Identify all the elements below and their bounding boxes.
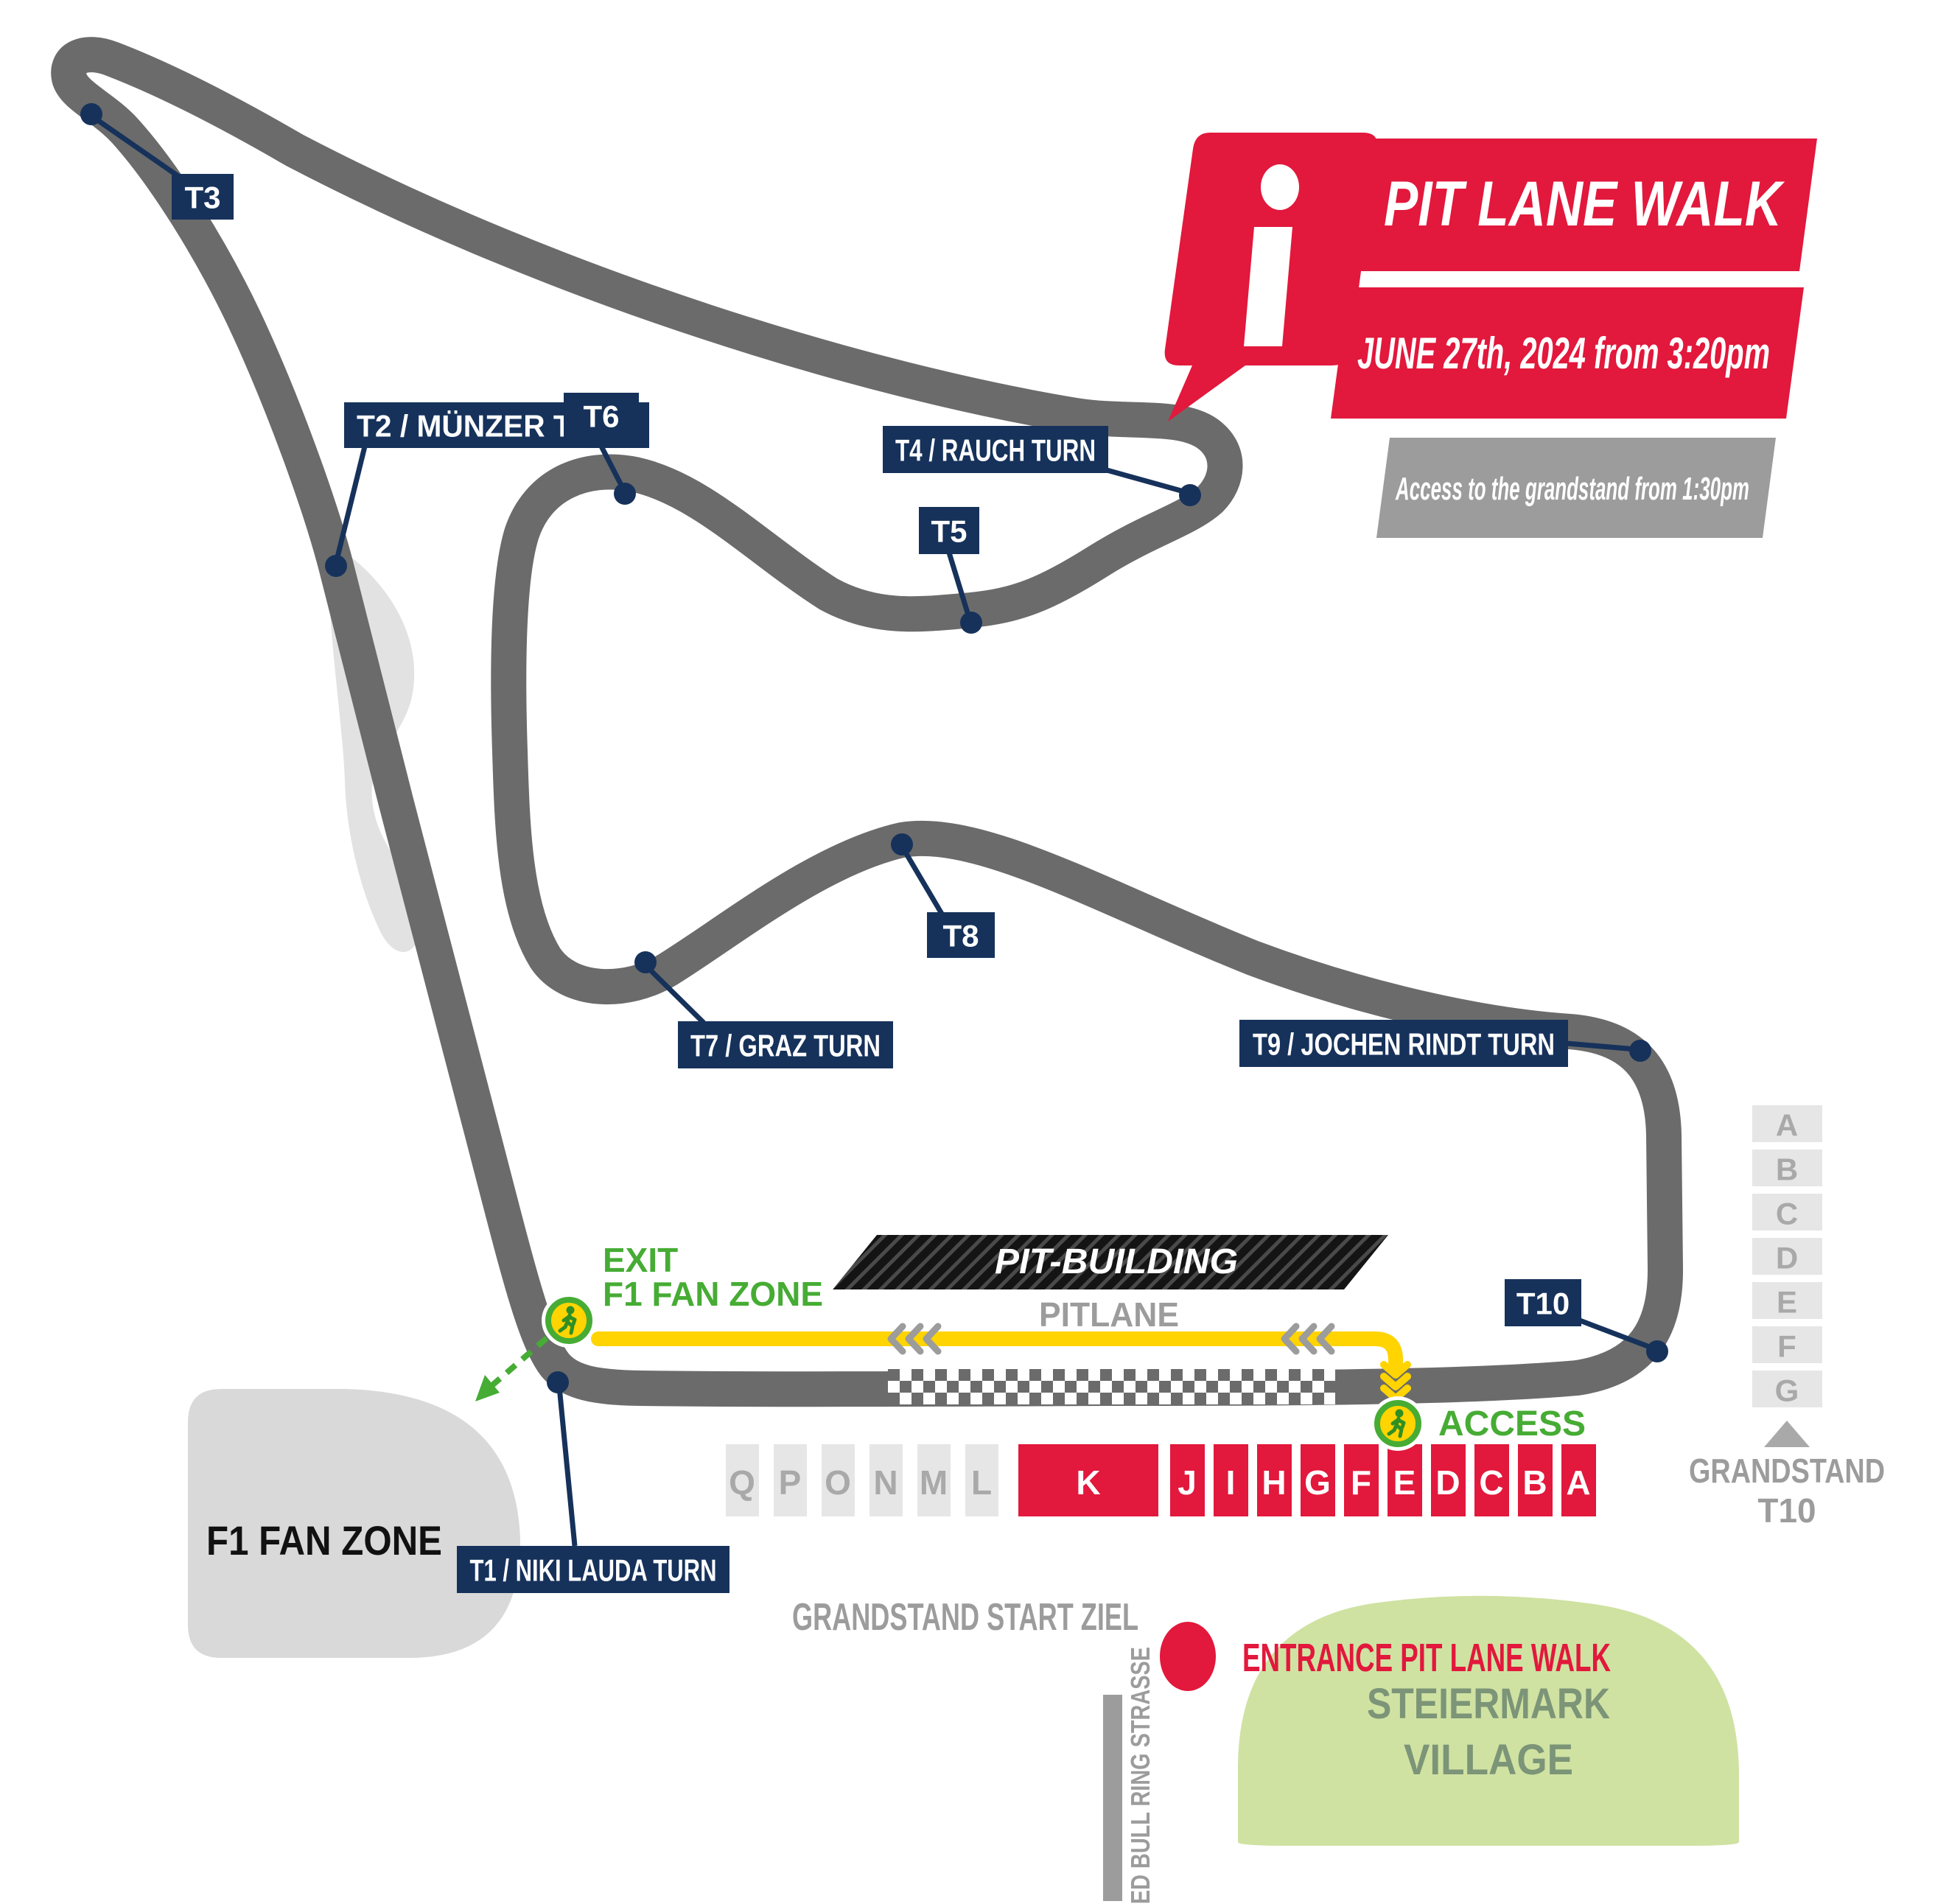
t10-section-letter: E bbox=[1777, 1285, 1797, 1320]
section-letter: M bbox=[920, 1463, 948, 1502]
pit-lane-walk-path bbox=[598, 1339, 1396, 1363]
pitlane-label: PITLANE bbox=[1039, 1295, 1179, 1334]
turn-label-t5: T5 bbox=[931, 514, 967, 549]
exit-walk-icon bbox=[542, 1293, 596, 1348]
section-letter: H bbox=[1262, 1463, 1286, 1502]
turn-label-t3: T3 bbox=[184, 181, 220, 215]
steiermark-village-label-line1: STEIERMARK bbox=[1367, 1680, 1610, 1728]
turn-label-t7: T7 / GRAZ TURN bbox=[690, 1029, 881, 1063]
section-letter: O bbox=[825, 1463, 851, 1502]
f1-fan-zone-label: F1 FAN ZONE bbox=[206, 1517, 442, 1564]
event-info-banner: PIT LANE WALK JUNE 27th, 2024 from 3:20p… bbox=[1165, 133, 1817, 538]
t10-section-letter: B bbox=[1776, 1152, 1798, 1187]
access-walk-icon bbox=[1371, 1396, 1425, 1451]
t10-section-letter: G bbox=[1775, 1373, 1799, 1408]
turn-label-t6: T6 bbox=[583, 399, 619, 434]
entrance-label: ENTRANCE PIT LANE WALK bbox=[1242, 1636, 1611, 1680]
grandstand-start-ziel-label: GRANDSTAND START ZIEL bbox=[792, 1596, 1138, 1639]
steiermark-village-label-line2: VILLAGE bbox=[1404, 1736, 1573, 1784]
entrance-dot bbox=[1160, 1622, 1216, 1691]
turn-label-t9: T9 / JOCHEN RINDT TURN bbox=[1253, 1027, 1555, 1062]
t10-section-letter: A bbox=[1776, 1108, 1798, 1143]
section-letter: J bbox=[1178, 1463, 1197, 1502]
section-letter: Q bbox=[729, 1463, 755, 1502]
start-finish-checker-strip bbox=[888, 1369, 1335, 1404]
section-letter: L bbox=[971, 1463, 992, 1502]
grandstand-t10-label-line2: T10 bbox=[1757, 1491, 1816, 1530]
section-letter-k: K bbox=[1076, 1463, 1100, 1502]
section-letter: C bbox=[1479, 1463, 1503, 1502]
section-letter: I bbox=[1226, 1463, 1236, 1502]
section-letter: D bbox=[1435, 1463, 1460, 1502]
section-letter: A bbox=[1566, 1463, 1590, 1502]
section-letter: F bbox=[1351, 1463, 1371, 1502]
banner-title: PIT LANE WALK bbox=[1384, 169, 1785, 239]
turn-label-t10: T10 bbox=[1516, 1287, 1570, 1321]
section-letter: G bbox=[1304, 1463, 1331, 1502]
access-label: ACCESS bbox=[1438, 1404, 1586, 1443]
banner-date: JUNE 27th, 2024 from 3:20pm bbox=[1357, 329, 1770, 378]
t10-section-letter: F bbox=[1777, 1329, 1796, 1364]
circuit-map: PIT-BUILDING PITLANE Q P O N bbox=[0, 0, 1935, 1904]
section-letter: P bbox=[779, 1463, 802, 1502]
grandstand-t10: A B C D E F G GRANDSTAND T10 bbox=[1689, 1105, 1885, 1530]
turn-label-t8: T8 bbox=[942, 919, 979, 953]
red-bull-ring-strasse-label: RED BULL RING STRASSE bbox=[1125, 1647, 1155, 1904]
exit-label-line1: EXIT bbox=[603, 1241, 678, 1279]
t10-section-letter: C bbox=[1776, 1197, 1798, 1231]
red-bull-ring-strasse-bar bbox=[1103, 1695, 1122, 1901]
exit-label-line2: F1 FAN ZONE bbox=[603, 1275, 823, 1313]
banner-access-note: Access to the grandstand from 1:30pm bbox=[1395, 471, 1749, 507]
t10-section-letter: D bbox=[1776, 1241, 1798, 1275]
section-letter: E bbox=[1393, 1463, 1416, 1502]
grandstand-t10-label-line1: GRANDSTAND bbox=[1689, 1452, 1885, 1490]
pit-building-label: PIT-BUILDING bbox=[995, 1242, 1238, 1281]
grandstand-t10-arrow-icon bbox=[1764, 1421, 1810, 1447]
info-icon bbox=[1261, 164, 1299, 210]
section-letter: N bbox=[873, 1463, 897, 1502]
turn-label-t1: T1 / NIKI LAUDA TURN bbox=[470, 1553, 717, 1588]
turn-label-t4: T4 / RAUCH TURN bbox=[895, 433, 1096, 468]
section-letter: B bbox=[1522, 1463, 1547, 1502]
